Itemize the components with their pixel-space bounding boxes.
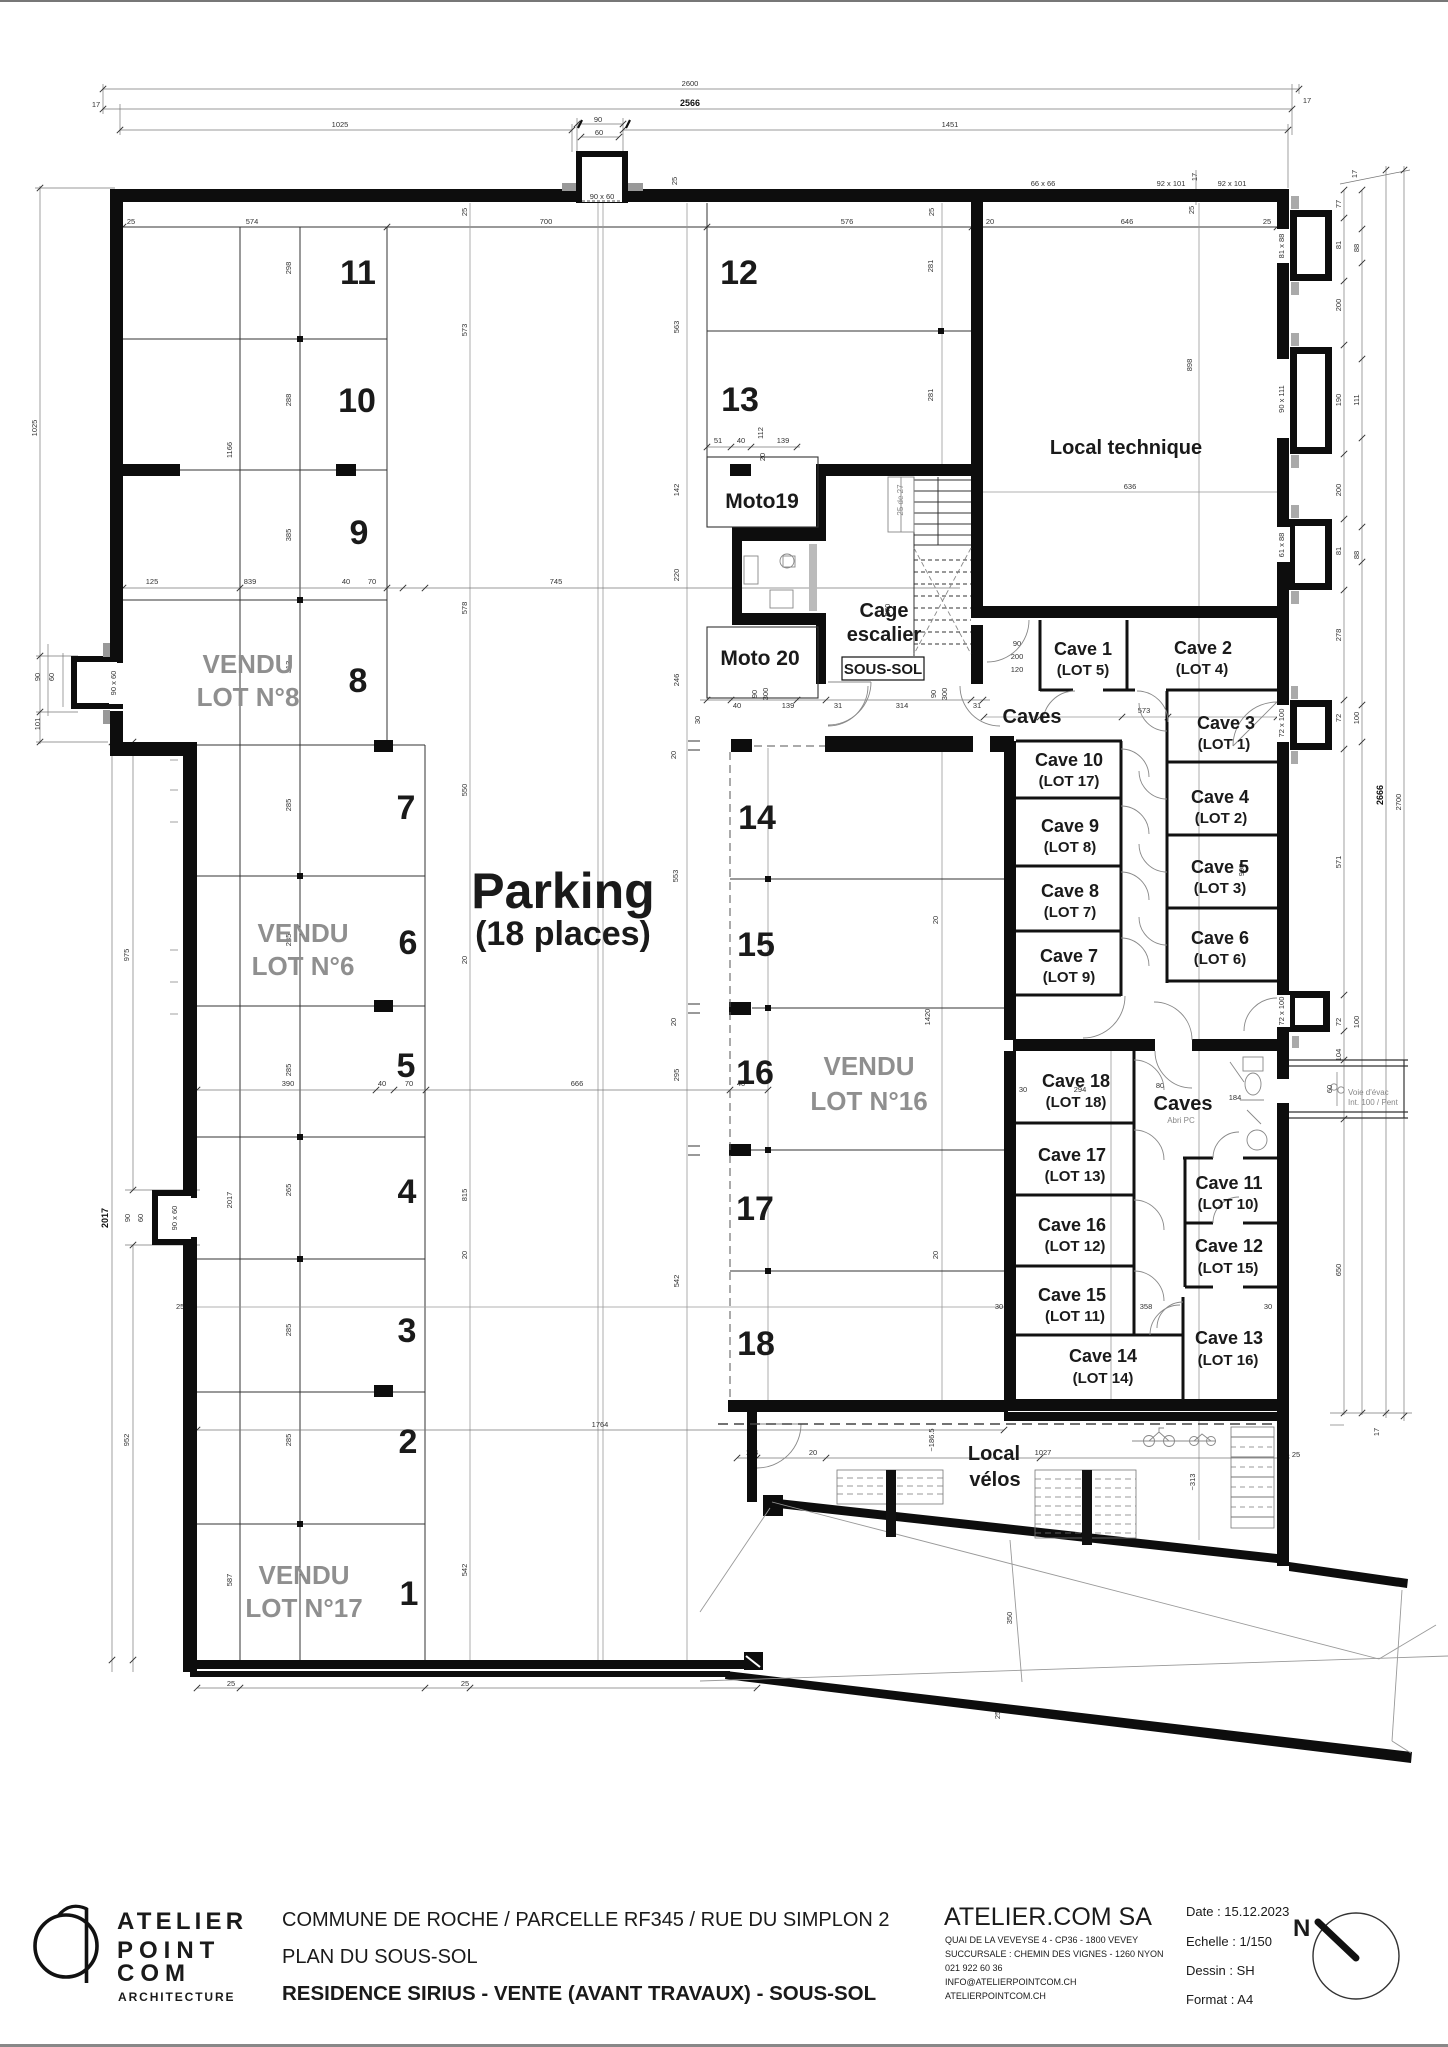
svg-text:1764: 1764 <box>592 1420 609 1429</box>
svg-text:(LOT 7): (LOT 7) <box>1044 904 1097 921</box>
svg-text:72 x 100: 72 x 100 <box>1277 709 1286 738</box>
svg-text:60: 60 <box>136 1214 145 1222</box>
svg-text:30: 30 <box>995 1302 1003 1311</box>
svg-text:20: 20 <box>931 1251 940 1259</box>
svg-text:90 x 60: 90 x 60 <box>590 192 615 201</box>
svg-text:Format : A4: Format : A4 <box>1186 1992 1253 2007</box>
svg-text:190: 190 <box>1334 394 1343 407</box>
svg-text:15: 15 <box>737 926 775 964</box>
svg-text:(LOT 16): (LOT 16) <box>1198 1352 1259 1369</box>
svg-text:246: 246 <box>672 674 681 687</box>
svg-text:952: 952 <box>122 1434 131 1447</box>
svg-text:Cave 8: Cave 8 <box>1041 881 1099 901</box>
svg-text:Echelle : 1/150: Echelle : 1/150 <box>1186 1934 1272 1949</box>
svg-text:RESIDENCE SIRIUS - VENTE (AVAN: RESIDENCE SIRIUS - VENTE (AVANT TRAVAUX)… <box>282 1982 876 2005</box>
svg-text:Cave 18: Cave 18 <box>1042 1071 1110 1091</box>
svg-text:285: 285 <box>284 1064 293 1077</box>
svg-text:200: 200 <box>1334 299 1343 312</box>
svg-text:542: 542 <box>460 1564 469 1577</box>
svg-text:298: 298 <box>284 262 293 275</box>
svg-text:25: 25 <box>1292 1450 1300 1459</box>
svg-text:120: 120 <box>1011 665 1024 674</box>
svg-text:40: 40 <box>737 436 745 445</box>
svg-text:QUAI DE LA VEVEYSE 4 - CP36 -: QUAI DE LA VEVEYSE 4 - CP36 - 1800 VEVEY <box>945 1935 1138 1945</box>
svg-text:17: 17 <box>92 100 100 109</box>
svg-text:Cave 9: Cave 9 <box>1041 816 1099 836</box>
svg-text:Caves: Caves <box>1003 706 1062 728</box>
svg-text:815: 815 <box>460 1189 469 1202</box>
svg-text:16: 16 <box>736 1054 774 1092</box>
svg-text:92 x 101: 92 x 101 <box>1218 179 1247 188</box>
svg-text:92 x 101: 92 x 101 <box>1157 179 1186 188</box>
svg-text:300: 300 <box>940 688 949 701</box>
svg-text:021 922 60 36: 021 922 60 36 <box>945 1963 1003 1973</box>
svg-text:587: 587 <box>225 1574 234 1587</box>
svg-text:(LOT 13): (LOT 13) <box>1045 1168 1106 1185</box>
svg-text:265: 265 <box>284 1184 293 1197</box>
svg-text:646: 646 <box>1121 217 1134 226</box>
svg-text:31: 31 <box>834 701 842 710</box>
svg-text:898: 898 <box>1185 359 1194 372</box>
svg-text:Dessin : SH: Dessin : SH <box>1186 1963 1255 1978</box>
svg-text:Cave 15: Cave 15 <box>1038 1285 1106 1305</box>
svg-text:3: 3 <box>398 1312 417 1350</box>
svg-text:200: 200 <box>1334 484 1343 497</box>
svg-text:31: 31 <box>973 701 981 710</box>
svg-text:~313: ~313 <box>1188 1474 1197 1491</box>
svg-text:SUCCURSALE : CHEMIN DES VIGNES: SUCCURSALE : CHEMIN DES VIGNES - 1260 NY… <box>945 1949 1164 1959</box>
svg-text:COMMUNE DE ROCHE / PARCELLE RF: COMMUNE DE ROCHE / PARCELLE RF345 / RUE … <box>282 1909 890 1931</box>
svg-text:ATELIERPOINTCOM.CH: ATELIERPOINTCOM.CH <box>945 1991 1046 2001</box>
svg-text:Local technique: Local technique <box>1050 437 1202 459</box>
svg-text:(LOT 4): (LOT 4) <box>1176 661 1229 678</box>
svg-text:13: 13 <box>721 381 759 419</box>
svg-text:90: 90 <box>123 1214 132 1222</box>
svg-text:314: 314 <box>896 701 909 710</box>
svg-text:72: 72 <box>1334 714 1343 722</box>
svg-text:60: 60 <box>1325 1085 1334 1093</box>
svg-text:(LOT 3): (LOT 3) <box>1194 880 1247 897</box>
svg-text:ATELIER: ATELIER <box>117 1908 247 1935</box>
svg-text:LOT N°8: LOT N°8 <box>197 682 300 712</box>
svg-text:(LOT 18): (LOT 18) <box>1046 1094 1107 1111</box>
svg-text:281: 281 <box>926 260 935 273</box>
svg-text:5: 5 <box>397 1047 416 1085</box>
svg-text:Cave 3: Cave 3 <box>1197 713 1255 733</box>
svg-text:66 x 66: 66 x 66 <box>1031 179 1056 188</box>
svg-text:2017: 2017 <box>225 1192 234 1209</box>
svg-text:Cave 14: Cave 14 <box>1069 1346 1137 1366</box>
svg-text:ATELIER.COM SA: ATELIER.COM SA <box>944 1903 1152 1931</box>
svg-text:81 x 88: 81 x 88 <box>1277 234 1286 259</box>
svg-text:(LOT 11): (LOT 11) <box>1045 1308 1105 1325</box>
svg-text:2600: 2600 <box>682 79 699 88</box>
svg-text:Cave 17: Cave 17 <box>1038 1145 1106 1165</box>
svg-text:25 de 27: 25 de 27 <box>896 484 905 516</box>
svg-text:51: 51 <box>714 436 722 445</box>
svg-text:70: 70 <box>368 577 376 586</box>
svg-text:Cave 16: Cave 16 <box>1038 1215 1106 1235</box>
svg-text:N: N <box>1293 1915 1310 1942</box>
svg-text:90 x 60: 90 x 60 <box>109 671 118 696</box>
svg-text:88: 88 <box>1352 551 1361 559</box>
svg-text:INFO@ATELIERPOINTCOM.CH: INFO@ATELIERPOINTCOM.CH <box>945 1977 1076 1987</box>
svg-text:17: 17 <box>1350 170 1359 178</box>
svg-text:100: 100 <box>1352 712 1361 725</box>
svg-text:40: 40 <box>733 701 741 710</box>
svg-text:~186.5: ~186.5 <box>927 1428 936 1451</box>
svg-text:(LOT 6): (LOT 6) <box>1194 951 1247 968</box>
svg-text:Cave 4: Cave 4 <box>1191 787 1249 807</box>
svg-text:745: 745 <box>550 577 563 586</box>
svg-text:101: 101 <box>33 718 42 731</box>
svg-text:COM: COM <box>117 1960 191 1987</box>
svg-text:30: 30 <box>1019 1085 1027 1094</box>
svg-text:12: 12 <box>720 254 758 292</box>
svg-text:20: 20 <box>669 751 678 759</box>
svg-text:90: 90 <box>929 690 938 698</box>
svg-text:Date : 15.12.2023: Date : 15.12.2023 <box>1186 1904 1289 1919</box>
svg-text:104: 104 <box>1334 1049 1343 1062</box>
svg-text:90 x 60: 90 x 60 <box>170 1206 179 1231</box>
svg-text:17: 17 <box>1303 96 1311 105</box>
svg-text:1025: 1025 <box>332 120 349 129</box>
svg-text:385: 385 <box>284 529 293 542</box>
svg-text:VENDU: VENDU <box>823 1051 914 1081</box>
svg-text:90: 90 <box>594 115 602 124</box>
svg-text:Moto19: Moto19 <box>725 490 799 513</box>
svg-text:550: 550 <box>460 784 469 797</box>
svg-text:40: 40 <box>342 577 350 586</box>
svg-text:72: 72 <box>1334 1018 1343 1026</box>
svg-text:25: 25 <box>461 1679 469 1688</box>
svg-text:vélos: vélos <box>969 1469 1020 1491</box>
svg-text:88: 88 <box>1352 244 1361 252</box>
svg-text:25: 25 <box>227 1679 235 1688</box>
svg-text:60: 60 <box>47 673 56 681</box>
svg-text:125: 125 <box>146 577 159 586</box>
svg-text:10: 10 <box>338 382 376 420</box>
svg-text:ARCHITECTURE: ARCHITECTURE <box>118 1990 235 2004</box>
svg-text:(18 places): (18 places) <box>475 915 651 953</box>
svg-text:LOT N°16: LOT N°16 <box>810 1086 927 1116</box>
svg-text:(LOT 5): (LOT 5) <box>1057 662 1110 679</box>
svg-text:VENDU: VENDU <box>257 918 348 948</box>
svg-text:9: 9 <box>350 514 369 552</box>
svg-text:1025: 1025 <box>30 420 39 437</box>
svg-text:1451: 1451 <box>942 120 959 129</box>
svg-text:139: 139 <box>782 701 795 710</box>
svg-text:77: 77 <box>1334 200 1343 208</box>
svg-text:Cave 13: Cave 13 <box>1195 1328 1263 1348</box>
svg-text:285: 285 <box>284 1324 293 1337</box>
svg-text:111: 111 <box>1352 394 1361 405</box>
svg-text:Cage: Cage <box>860 600 909 622</box>
svg-text:666: 666 <box>571 1079 584 1088</box>
svg-text:20: 20 <box>669 1018 678 1026</box>
svg-text:2566: 2566 <box>680 98 700 108</box>
svg-text:2: 2 <box>399 1423 418 1461</box>
svg-text:4: 4 <box>398 1173 417 1211</box>
svg-text:18: 18 <box>737 1325 775 1363</box>
svg-text:6: 6 <box>399 924 418 962</box>
svg-text:Cave 5: Cave 5 <box>1191 857 1249 877</box>
svg-text:2700: 2700 <box>1394 794 1403 811</box>
svg-text:285: 285 <box>284 799 293 812</box>
svg-text:1: 1 <box>400 1575 419 1613</box>
svg-text:(LOT 12): (LOT 12) <box>1045 1238 1106 1255</box>
svg-text:20: 20 <box>986 217 994 226</box>
svg-text:25: 25 <box>460 208 469 216</box>
svg-text:30: 30 <box>1264 1302 1272 1311</box>
svg-text:573: 573 <box>460 324 469 337</box>
svg-text:220: 220 <box>672 569 681 582</box>
svg-text:25: 25 <box>127 217 135 226</box>
svg-text:(LOT 10): (LOT 10) <box>1198 1196 1259 1213</box>
svg-text:563: 563 <box>672 321 681 334</box>
svg-text:(LOT 8): (LOT 8) <box>1044 839 1097 856</box>
svg-text:553: 553 <box>671 870 680 883</box>
svg-text:574: 574 <box>246 217 259 226</box>
svg-text:25: 25 <box>670 177 679 185</box>
svg-text:17: 17 <box>1190 173 1199 181</box>
svg-text:61 x 88: 61 x 88 <box>1277 533 1286 558</box>
svg-text:1420: 1420 <box>923 1009 932 1026</box>
svg-text:LOT N°17: LOT N°17 <box>245 1593 362 1623</box>
svg-text:Abri PC: Abri PC <box>1167 1116 1195 1125</box>
svg-text:390: 390 <box>282 1079 295 1088</box>
svg-text:100: 100 <box>1352 1016 1361 1029</box>
svg-text:278: 278 <box>1334 629 1343 642</box>
svg-text:Moto 20: Moto 20 <box>720 647 799 670</box>
svg-text:(LOT 14): (LOT 14) <box>1073 1370 1134 1387</box>
svg-text:escalier: escalier <box>847 624 922 646</box>
svg-text:(LOT 17): (LOT 17) <box>1039 773 1100 790</box>
svg-text:25: 25 <box>1263 217 1271 226</box>
svg-text:VENDU: VENDU <box>258 1560 349 1590</box>
svg-text:Cave 11: Cave 11 <box>1195 1173 1262 1193</box>
svg-text:90 x 111: 90 x 111 <box>1277 385 1286 413</box>
svg-text:Cave 6: Cave 6 <box>1191 928 1249 948</box>
svg-text:1166: 1166 <box>225 442 234 458</box>
svg-text:8: 8 <box>349 662 368 700</box>
svg-text:650: 650 <box>1334 1264 1343 1277</box>
svg-text:7: 7 <box>397 789 416 827</box>
svg-text:542: 542 <box>672 1275 681 1288</box>
svg-text:14: 14 <box>738 799 776 837</box>
svg-text:60: 60 <box>595 128 603 137</box>
svg-text:25: 25 <box>1187 206 1196 214</box>
svg-text:Cave 10: Cave 10 <box>1035 750 1103 770</box>
svg-text:Cave 12: Cave 12 <box>1195 1236 1263 1256</box>
svg-text:72 x 100: 72 x 100 <box>1277 997 1286 1026</box>
svg-text:LOT N°6: LOT N°6 <box>252 951 355 981</box>
svg-text:17: 17 <box>736 1190 774 1228</box>
svg-text:(LOT 1): (LOT 1) <box>1198 736 1251 753</box>
svg-text:281: 281 <box>926 389 935 402</box>
svg-text:839: 839 <box>244 577 257 586</box>
svg-text:20: 20 <box>460 1251 469 1259</box>
svg-text:285: 285 <box>284 1434 293 1447</box>
svg-text:81: 81 <box>1334 547 1343 555</box>
svg-text:20: 20 <box>809 1448 817 1457</box>
svg-text:20: 20 <box>460 956 469 964</box>
svg-text:Parking: Parking <box>471 863 654 919</box>
svg-text:11: 11 <box>340 254 376 292</box>
svg-text:142: 142 <box>672 484 681 497</box>
svg-text:PLAN DU SOUS-SOL: PLAN DU SOUS-SOL <box>282 1946 478 1968</box>
svg-text:2017: 2017 <box>100 1208 110 1228</box>
svg-text:(LOT 15): (LOT 15) <box>1198 1260 1259 1277</box>
svg-text:17: 17 <box>1372 1428 1381 1436</box>
svg-text:Local: Local <box>968 1443 1020 1465</box>
svg-text:90: 90 <box>750 690 759 698</box>
svg-text:Cave 1: Cave 1 <box>1054 639 1112 659</box>
svg-text:SOUS-SOL: SOUS-SOL <box>844 661 922 678</box>
svg-text:578: 578 <box>460 602 469 615</box>
svg-text:40: 40 <box>378 1079 386 1088</box>
svg-text:184: 184 <box>1229 1093 1242 1102</box>
svg-text:636: 636 <box>1124 482 1137 491</box>
svg-text:90: 90 <box>33 673 42 681</box>
svg-text:288: 288 <box>284 394 293 407</box>
svg-text:571: 571 <box>1334 856 1343 869</box>
svg-text:Voie d'évac: Voie d'évac <box>1348 1088 1389 1097</box>
svg-text:358: 358 <box>1140 1302 1153 1311</box>
svg-text:Cave 2: Cave 2 <box>1174 638 1232 658</box>
svg-text:2666: 2666 <box>1375 785 1385 805</box>
svg-text:975: 975 <box>122 949 131 962</box>
svg-text:30: 30 <box>693 716 702 724</box>
svg-text:576: 576 <box>841 217 854 226</box>
svg-text:Caves: Caves <box>1154 1093 1213 1115</box>
svg-text:20: 20 <box>931 916 940 924</box>
svg-text:81: 81 <box>1334 241 1343 249</box>
svg-text:Int. 100 / Pent: Int. 100 / Pent <box>1348 1098 1399 1107</box>
svg-text:139: 139 <box>777 436 790 445</box>
svg-text:700: 700 <box>540 217 553 226</box>
svg-text:(LOT 2): (LOT 2) <box>1195 810 1248 827</box>
svg-text:112: 112 <box>756 427 765 439</box>
svg-text:350: 350 <box>1005 1612 1014 1625</box>
svg-text:25: 25 <box>927 208 936 216</box>
svg-text:295: 295 <box>672 1069 681 1082</box>
svg-text:Cave 7: Cave 7 <box>1040 946 1098 966</box>
svg-text:VENDU: VENDU <box>202 649 293 679</box>
svg-text:(LOT 9): (LOT 9) <box>1043 969 1096 986</box>
